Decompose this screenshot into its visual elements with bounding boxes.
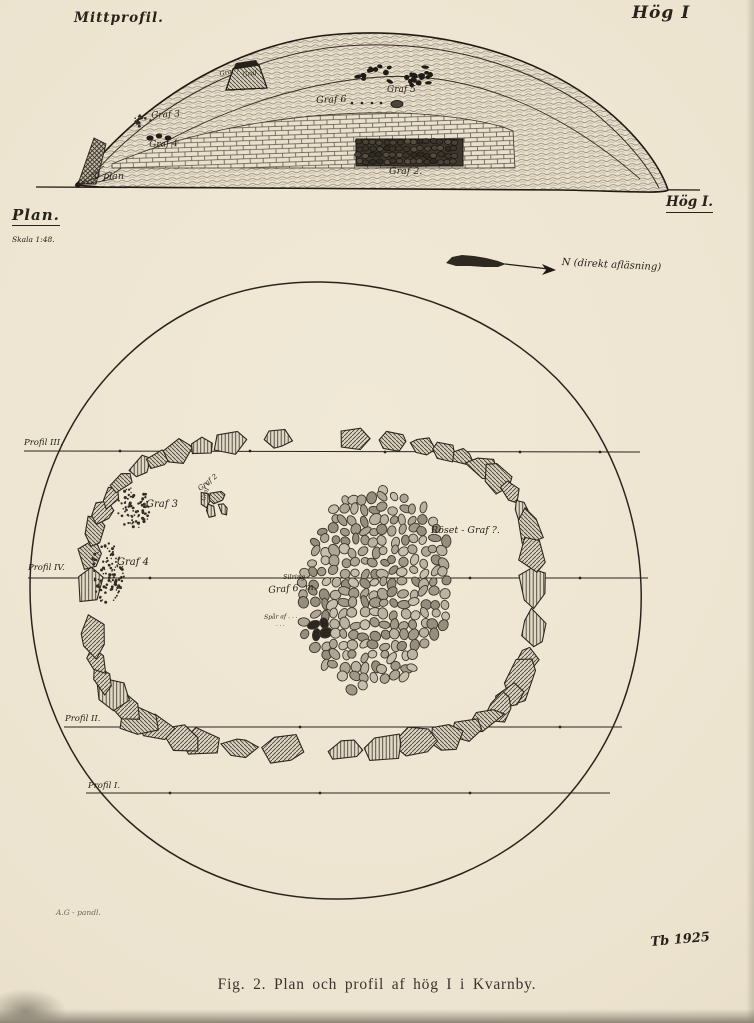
pencil-note: A.G - pandl.	[56, 909, 101, 917]
figure-caption: Fig. 2. Plan och profil af hög I i Kvarn…	[0, 976, 754, 994]
profil-ii-label: Profil II.	[65, 715, 100, 724]
plan-graf3-label: Graf 3	[146, 500, 178, 510]
scanned-figure-page: Mittprofil. Hög I Graf 7 Graf 1 Graf 5 G…	[0, 0, 754, 1023]
mound-label-top: Hög I	[632, 5, 690, 22]
mound-label-plan: Hög I.	[666, 196, 713, 213]
silring-label: Silring	[283, 574, 305, 581]
plan-title: Plan.	[12, 208, 60, 226]
profile-graf3-label: Graf 3	[151, 110, 180, 120]
profile-graf5-label: Graf 5	[387, 86, 416, 95]
figure-drawing	[0, 0, 754, 1023]
profil-i-label: Profil I.	[88, 782, 120, 791]
scan-edge-right	[746, 0, 754, 1023]
profil-iv-label: Profil IV.	[28, 564, 65, 573]
scan-edge-bottom	[0, 1009, 754, 1023]
spar-label-line2: . . .	[276, 623, 285, 629]
profile-graf4-label: Graf 4	[149, 140, 178, 150]
profil-iii-label: Profil III.	[24, 439, 63, 448]
scale-label: Skala 1:48.	[12, 236, 55, 244]
roset-label: Röset - Graf ?.	[431, 526, 500, 536]
plan-graf4-label: Graf 4	[117, 558, 149, 568]
zero-plane-label: 0 plan	[94, 172, 124, 182]
profile-graf6-label: Graf 6	[316, 95, 347, 106]
spar-label-line1: Spår af . . .	[264, 614, 298, 621]
profile-graf2-label: Graf 2.	[389, 167, 422, 177]
profile-title: Mittprofil.	[74, 12, 164, 26]
north-arrow	[446, 255, 556, 275]
